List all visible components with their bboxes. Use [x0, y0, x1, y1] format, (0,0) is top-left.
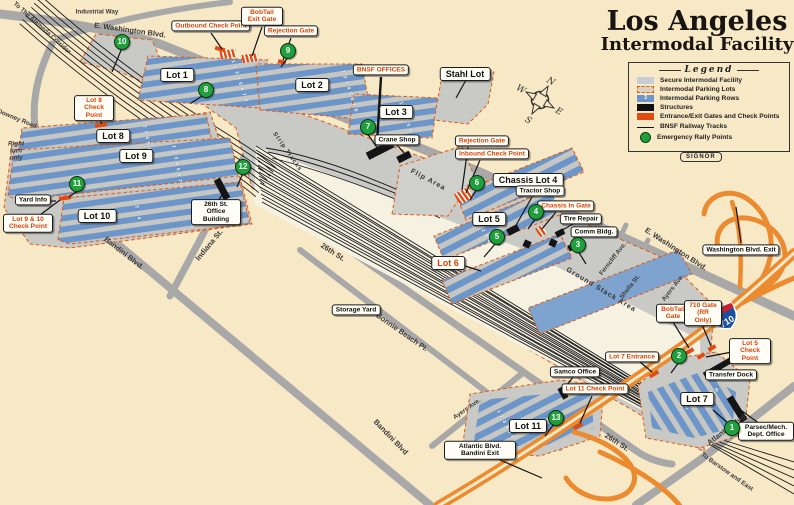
gates-swatch: [637, 113, 654, 120]
rally-point-13: 13: [548, 410, 564, 426]
compass-s: S: [523, 115, 533, 127]
stahl-lot-label: Stahl Lot: [440, 67, 491, 81]
legend-item-structures: Structures: [637, 104, 789, 111]
railway-swatch: [637, 127, 654, 128]
compass-rose: N S W E: [502, 64, 575, 138]
legend-item-secure: Secure Intermodal Facility: [637, 77, 789, 84]
legend-label: Secure Intermodal Facility: [660, 77, 742, 84]
comm-bldg-callout: Comm Bldg.: [571, 226, 618, 237]
samco-office-callout: Samco Office: [550, 366, 600, 377]
legend-label: Intermodal Parking Rows: [660, 95, 739, 102]
parsec-office-callout: Parsec/Mech. Dept. Office: [738, 422, 794, 441]
lot3-label: Lot 3: [379, 105, 413, 119]
title-line2: Intermodal Facility: [600, 36, 794, 54]
bobtail-exit-gate-callout: BobTail Exit Gate: [241, 7, 283, 26]
compass-e: E: [552, 105, 564, 118]
26th-st-office-callout: 26th St. Office Building: [191, 199, 241, 225]
rejection-gate-top-callout: Rejection Gate: [264, 25, 318, 36]
outbound-check-point-callout: Outbound Check Point: [171, 20, 250, 31]
inbound-check-point-callout: Inbound Check Point: [455, 148, 529, 159]
legend-label: BNSF Railway Tracks: [660, 123, 727, 130]
bnsf-offices-callout: BNSF OFFICES: [353, 64, 409, 75]
rally-point-6: 6: [469, 175, 485, 191]
lot6-label: Lot 6: [431, 256, 465, 270]
rally-point-7: 7: [360, 119, 376, 135]
crane-shop-callout: Crane Shop: [374, 134, 419, 145]
map-title: Los Angeles Intermodal Facility: [600, 8, 794, 54]
lot10-row-numbers: 1234: [129, 196, 151, 222]
legend-panel: Legend Secure Intermodal Facility Interm…: [628, 62, 790, 152]
tire-repair-callout: Tire Repair: [560, 213, 602, 224]
legend-label: Entrance/Exit Gates and Check Points: [660, 113, 779, 120]
rally-point-12: 12: [235, 159, 251, 175]
la-intermodal-facility-map: N S W E 710 Los Angeles Intermodal Facil…: [0, 0, 794, 505]
yard-info-callout: Yard Info: [15, 194, 51, 205]
secure-facility-swatch: [637, 77, 654, 84]
parking-rows-swatch: 3: [637, 95, 654, 102]
legend-label: Emergency Rally Points: [657, 134, 732, 141]
lot7-entrance-callout: Lot 7 Entrance: [605, 351, 659, 362]
tractor-shop-callout: Tractor Shop: [516, 185, 565, 196]
legend-dash-left: [659, 70, 681, 71]
lot10-label: Lot 10: [78, 209, 117, 223]
rally-point-3: 3: [570, 237, 586, 253]
parking-lots-swatch: [637, 86, 654, 93]
rejection-gate-callout: Rejection Gate: [455, 135, 509, 146]
street-label-industrial-way: Industrial Way: [75, 10, 119, 17]
lot11-check-point-callout: Lot 11 Check Point: [562, 383, 629, 394]
legend-heading-text: Legend: [685, 65, 734, 75]
rally-point-2: 2: [671, 348, 687, 364]
compass-n: N: [544, 75, 558, 89]
lot1-label: Lot 1: [160, 68, 194, 82]
lot9-label: Lot 9: [119, 149, 153, 163]
structures-swatch: [637, 104, 654, 111]
rally-point-1: 1: [724, 420, 740, 436]
legend-item-gates: Entrance/Exit Gates and Check Points: [637, 113, 789, 120]
rally-point-4: 4: [528, 204, 544, 220]
lot8-check-point-callout: Lot 8 Check Point: [74, 95, 114, 121]
title-line1: Los Angeles: [600, 8, 794, 36]
lot11-label: Lot 11: [509, 419, 547, 433]
right-turn-only-note: Right turn only: [3, 142, 29, 163]
lot7-label: Lot 7: [680, 392, 714, 406]
transfer-dock-callout: Transfer Dock: [705, 369, 757, 380]
rally-point-10: 10: [114, 34, 130, 50]
legend-heading: Legend: [629, 65, 789, 75]
chassis-in-gate-callout: Chassis In Gate: [537, 200, 594, 211]
compass-w: W: [514, 83, 528, 97]
lot5-label: Lot 5: [472, 212, 506, 226]
washington-exit-callout: Washington Blvd. Exit: [702, 244, 779, 255]
lot8-label: Lot 8: [96, 129, 130, 143]
lot2-label: Lot 2: [295, 78, 329, 92]
rally-point-8: 8: [198, 82, 214, 98]
rally-point-11: 11: [69, 176, 85, 192]
rally-point-9: 9: [280, 43, 296, 59]
gate-710-callout: 710 Gate (RR Only): [684, 300, 722, 326]
legend-item-parking-lots: Intermodal Parking Lots: [637, 86, 789, 93]
legend-item-parking-rows: 3 Intermodal Parking Rows: [637, 95, 789, 102]
legend-label: Intermodal Parking Lots: [660, 86, 735, 93]
lot9-10-check-point-callout: Lot 9 & 10 Check Point: [3, 214, 53, 233]
legend-dash-right: [737, 70, 759, 71]
atlantic-bandini-exit-callout: Atlantic Blvd. Bandini Exit: [444, 441, 516, 460]
rally-point-swatch: [640, 132, 651, 143]
storage-yard-label: Storage Yard: [332, 304, 381, 315]
rally-point-5: 5: [489, 229, 505, 245]
lot5-check-point-callout: Lot 5 Check Point: [729, 338, 771, 364]
legend-label: Structures: [660, 104, 693, 111]
legend-item-rally: Emergency Rally Points: [637, 132, 789, 143]
legend-item-tracks: BNSF Railway Tracks: [637, 123, 789, 130]
signor-badge: SIGNOR: [680, 152, 722, 162]
